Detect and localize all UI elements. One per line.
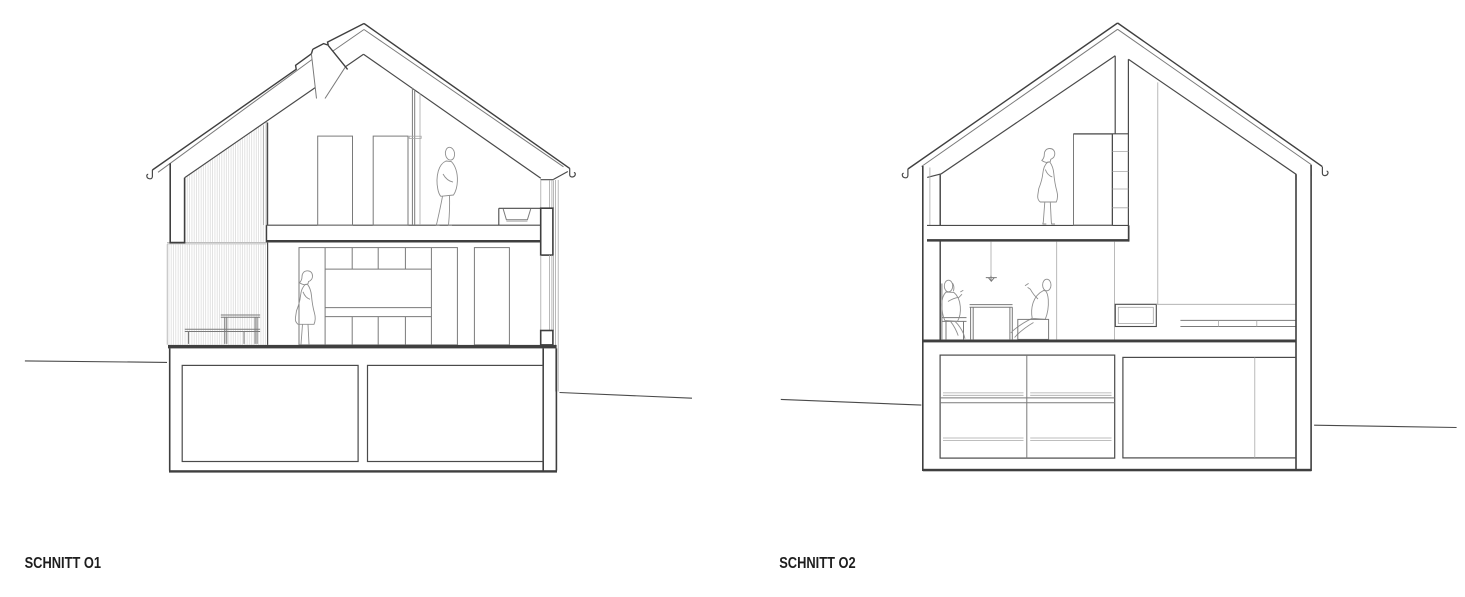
svg-text:SCHNITT O2: SCHNITT O2: [779, 555, 856, 572]
svg-text:SCHNITT O1: SCHNITT O1: [25, 555, 102, 572]
